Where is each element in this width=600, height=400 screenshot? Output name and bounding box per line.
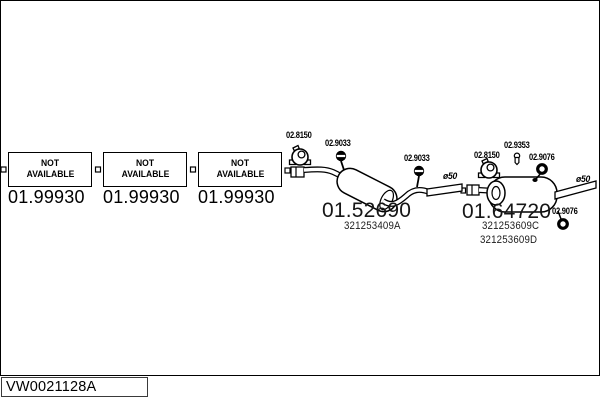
oem-ref-rear-silencer-1: 321253609C <box>482 220 539 232</box>
fitting-label-clamp-middle[interactable]: 02.8150 <box>286 130 312 140</box>
rubber-hanger-icon <box>414 166 424 176</box>
diameter-label-rear: ø50 <box>576 174 590 185</box>
fitting-label-ring-1[interactable]: 02.9076 <box>529 152 555 162</box>
diameter-label-middle: ø50 <box>443 171 457 182</box>
status-text: AVAILABLE <box>216 170 264 181</box>
fitting-label-clamp-rear[interactable]: 02.8150 <box>474 150 500 160</box>
bolt-icon <box>514 153 519 164</box>
tailpipe-drawing <box>427 184 462 196</box>
drawing-code-box: VW0021128A <box>1 377 148 397</box>
fitting-label-hanger-1[interactable]: 02.9033 <box>325 138 351 148</box>
not-available-box-1[interactable]: NOT AVAILABLE <box>8 152 92 187</box>
rubber-hanger-icon <box>336 151 346 161</box>
diagram-canvas: NOT AVAILABLE NOT AVAILABLE NOT AVAILABL… <box>0 0 600 400</box>
not-available-box-2[interactable]: NOT AVAILABLE <box>103 152 187 187</box>
part-number-1[interactable]: 01.99930 <box>8 187 85 208</box>
drawing-code: VW0021128A <box>2 379 96 395</box>
not-available-box-3[interactable]: NOT AVAILABLE <box>198 152 282 187</box>
ring-gasket-icon <box>559 220 568 229</box>
fitting-label-hanger-2[interactable]: 02.9033 <box>404 153 430 163</box>
fitting-label-ring-2[interactable]: 02.9076 <box>552 206 578 216</box>
pipe-clamp-icon <box>479 159 500 179</box>
part-number-2[interactable]: 01.99930 <box>103 187 180 208</box>
status-text: AVAILABLE <box>26 170 74 181</box>
part-number-3[interactable]: 01.99930 <box>198 187 275 208</box>
status-text: AVAILABLE <box>121 170 169 181</box>
oem-ref-middle-silencer: 321253409A <box>344 220 401 232</box>
ring-gasket-icon <box>538 165 547 174</box>
pipe-clamp-icon <box>290 146 311 166</box>
oem-ref-rear-silencer-2: 321253609D <box>480 234 537 246</box>
fitting-label-bolt[interactable]: 02.9353 <box>504 140 530 150</box>
